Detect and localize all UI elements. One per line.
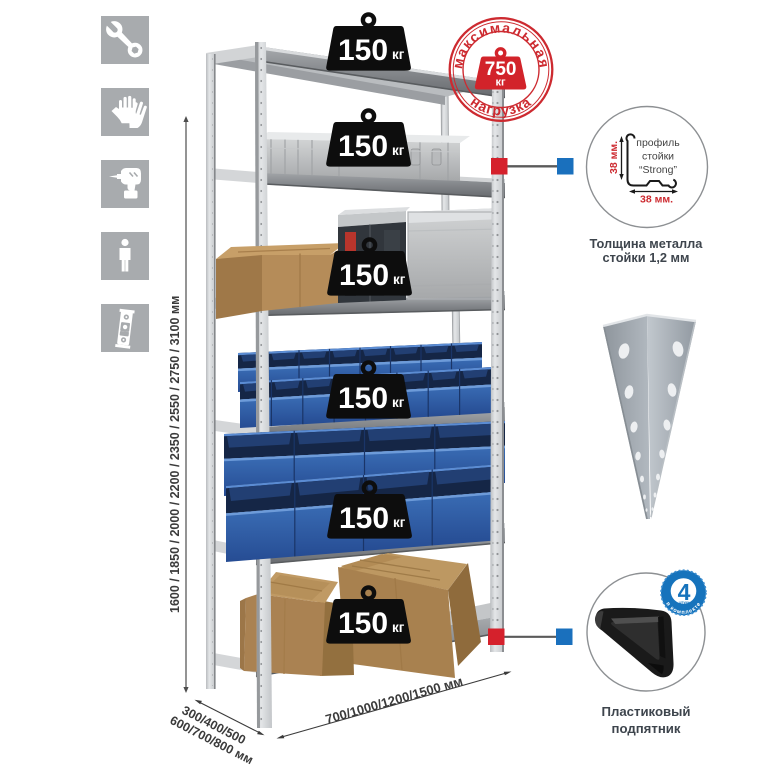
svg-text:кг: кг	[496, 77, 507, 89]
svg-text:38 мм.: 38 мм.	[608, 141, 620, 174]
svg-text:Пластиковый: Пластиковый	[601, 704, 690, 719]
svg-text:Толщина металла: Толщина металла	[590, 236, 704, 251]
svg-text:штуки: штуки	[679, 601, 690, 605]
svg-text:стойки: стойки	[642, 151, 674, 163]
svg-text:стойки 1,2 мм: стойки 1,2 мм	[602, 250, 689, 265]
svg-text:1600 / 1850 / 2000 / 2200 / 23: 1600 / 1850 / 2000 / 2200 / 2350 / 2550 …	[168, 296, 182, 613]
svg-text:150: 150	[338, 34, 388, 67]
svg-text:“Strong”: “Strong”	[639, 164, 677, 176]
svg-text:кг: кг	[392, 47, 405, 62]
svg-text:подпятник: подпятник	[611, 721, 680, 736]
svg-text:профиль: профиль	[636, 137, 680, 149]
svg-text:38 мм.: 38 мм.	[640, 194, 673, 206]
